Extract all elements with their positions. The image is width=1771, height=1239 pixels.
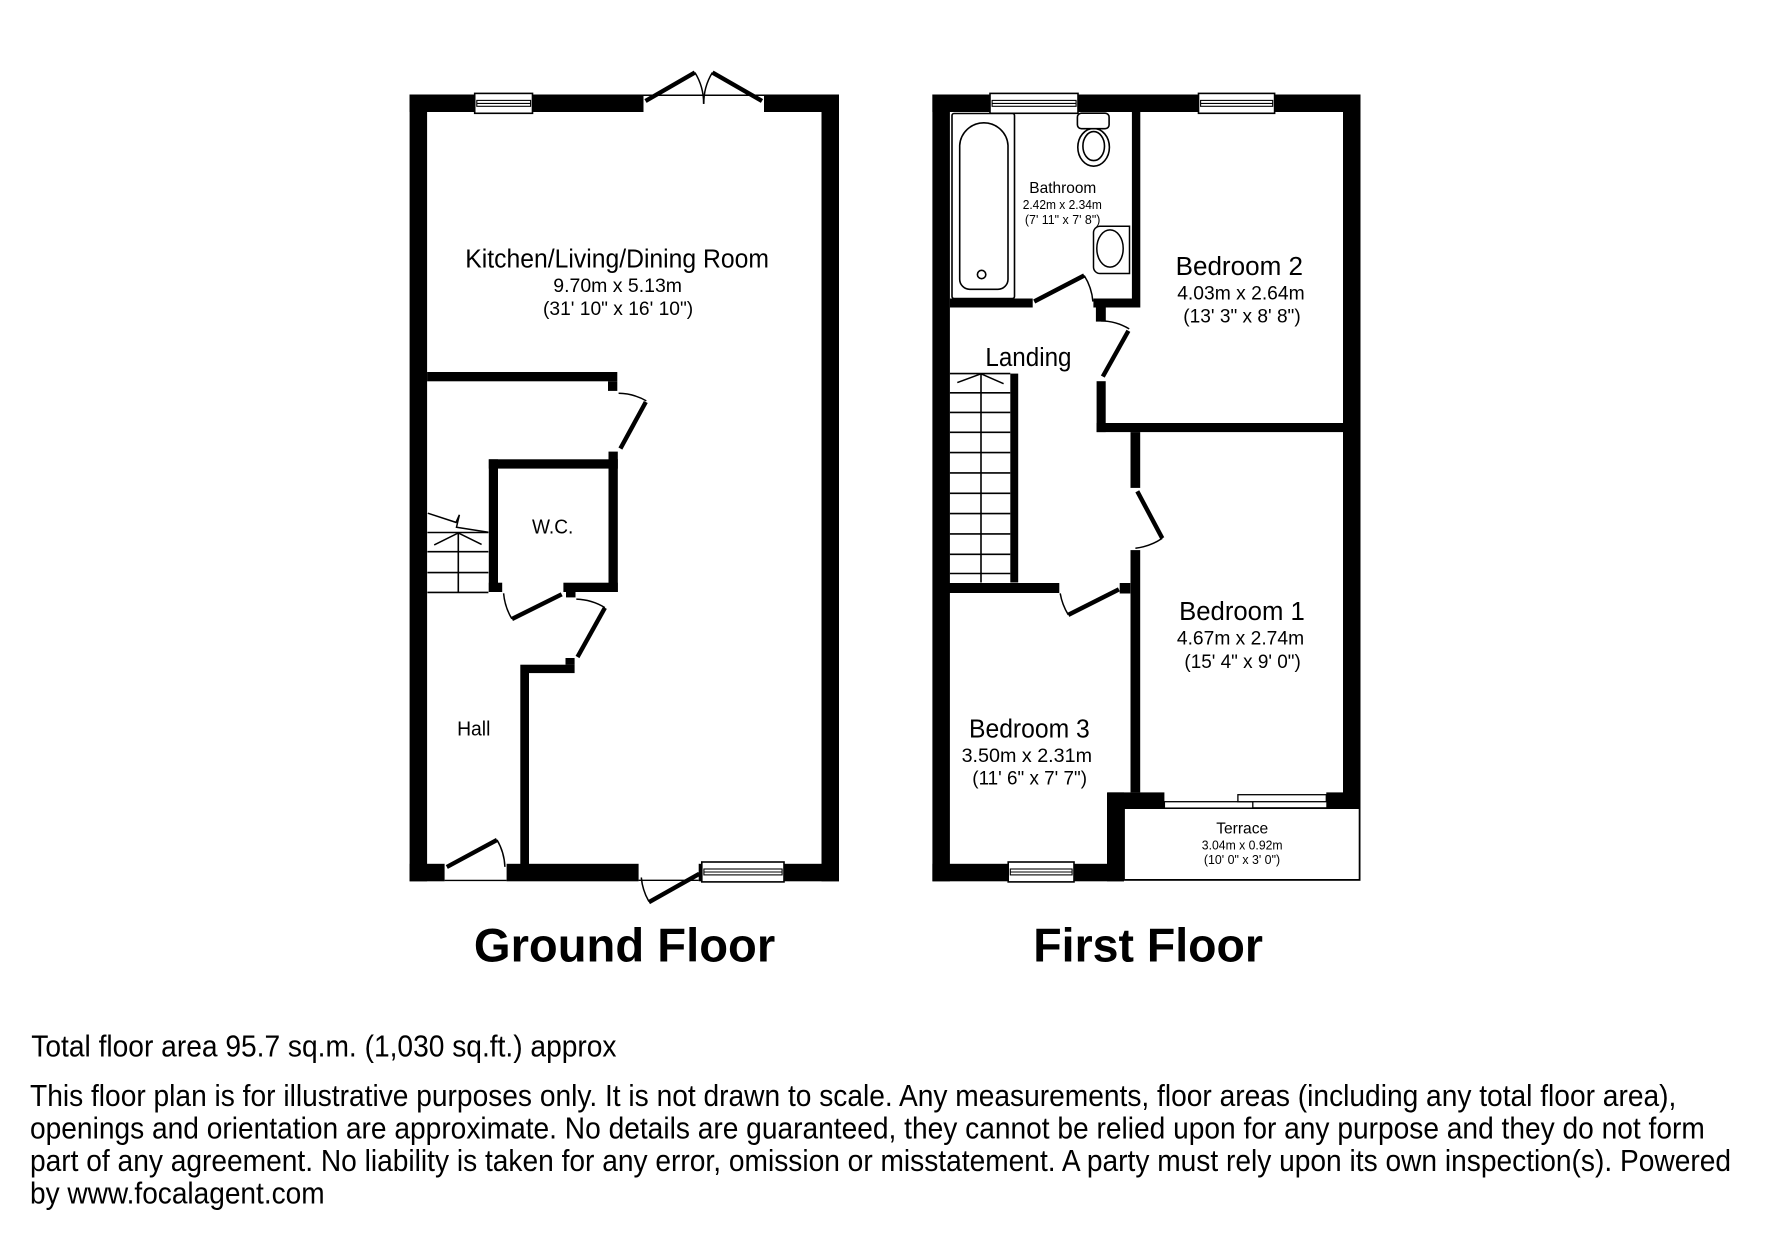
- svg-text:(15' 4" x 9' 0"): (15' 4" x 9' 0"): [1184, 651, 1300, 673]
- svg-text:4.67m x 2.74m: 4.67m x 2.74m: [1177, 628, 1304, 650]
- svg-text:2.42m x 2.34m: 2.42m x 2.34m: [1023, 198, 1102, 212]
- svg-text:3.50m x 2.31m: 3.50m x 2.31m: [962, 745, 1092, 767]
- svg-text:4.03m x 2.64m: 4.03m x 2.64m: [1177, 282, 1305, 304]
- svg-text:9.70m x 5.13m: 9.70m x 5.13m: [553, 275, 682, 297]
- svg-text:(13' 3" x 8' 8"): (13' 3" x 8' 8"): [1183, 305, 1300, 327]
- svg-text:Bedroom 3: Bedroom 3: [969, 713, 1090, 743]
- svg-text:Bathroom: Bathroom: [1029, 179, 1096, 197]
- svg-text:(7' 11" x 7' 8"): (7' 11" x 7' 8"): [1025, 213, 1101, 227]
- svg-text:Terrace: Terrace: [1216, 820, 1268, 838]
- svg-text:Hall: Hall: [457, 718, 490, 740]
- svg-text:(11' 6" x 7' 7"): (11' 6" x 7' 7"): [972, 767, 1087, 789]
- svg-text:openings and orientation are a: openings and orientation are approximate…: [30, 1113, 1705, 1146]
- svg-text:This floor plan is for illustr: This floor plan is for illustrative purp…: [30, 1080, 1676, 1113]
- svg-text:Landing: Landing: [985, 342, 1071, 372]
- svg-text:Total floor area 95.7 sq.m. (1: Total floor area 95.7 sq.m. (1,030 sq.ft…: [31, 1031, 616, 1064]
- svg-text:Ground Floor: Ground Floor: [474, 919, 775, 972]
- svg-text:W.C.: W.C.: [532, 516, 573, 538]
- svg-text:Bedroom 2: Bedroom 2: [1176, 251, 1303, 281]
- svg-text:Kitchen/Living/Dining Room: Kitchen/Living/Dining Room: [465, 244, 769, 274]
- svg-text:(10' 0" x 3' 0"): (10' 0" x 3' 0"): [1204, 853, 1280, 867]
- svg-text:First Floor: First Floor: [1033, 919, 1263, 972]
- svg-text:by www.focalagent.com: by www.focalagent.com: [30, 1177, 325, 1210]
- svg-text:(31' 10" x 16' 10"): (31' 10" x 16' 10"): [543, 298, 693, 320]
- svg-text:part of any agreement. No liab: part of any agreement. No liability is t…: [30, 1145, 1731, 1178]
- svg-text:3.04m x 0.92m: 3.04m x 0.92m: [1202, 838, 1283, 852]
- svg-text:Bedroom 1: Bedroom 1: [1179, 596, 1305, 626]
